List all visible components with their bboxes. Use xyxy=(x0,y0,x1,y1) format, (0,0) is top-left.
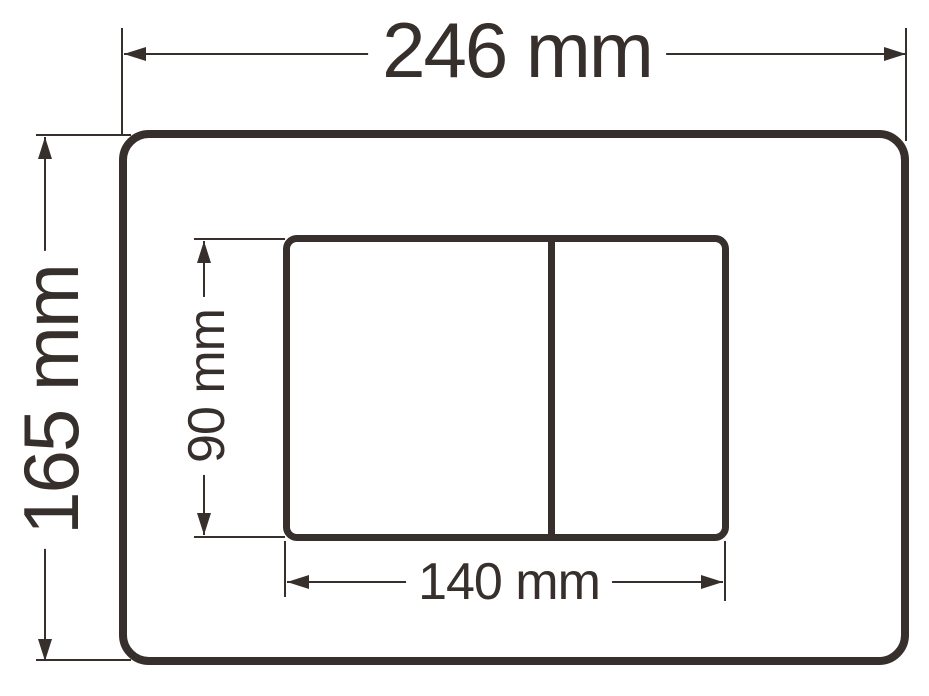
button-divider-line xyxy=(548,239,555,537)
outer-width-extension-line-left xyxy=(121,28,123,136)
outer-height-label: 165 mm xyxy=(12,251,90,549)
outer-width-arrow-left-icon xyxy=(124,47,146,61)
outer-height-arrow-up-icon xyxy=(38,137,52,159)
inner-width-extension-line-left xyxy=(284,541,286,597)
inner-width-arrow-left-icon xyxy=(287,575,309,589)
inner-height-arrow-down-icon xyxy=(197,513,211,535)
button-panel-outline xyxy=(283,235,729,541)
inner-width-arrow-right-icon xyxy=(701,575,723,589)
outer-height-arrow-down-icon xyxy=(38,639,52,661)
inner-width-label: 140 mm xyxy=(406,556,612,608)
inner-width-extension-line-right xyxy=(724,541,726,601)
outer-width-extension-line-right xyxy=(905,28,907,141)
inner-height-extension-line-bottom xyxy=(194,536,285,538)
inner-height-extension-line-top xyxy=(194,238,285,240)
inner-height-arrow-up-icon xyxy=(197,241,211,263)
dimension-drawing: { "diagram": { "background": "#ffffff", … xyxy=(0,0,929,696)
outer-width-label: 246 mm xyxy=(368,11,666,89)
outer-height-extension-line-top xyxy=(36,134,131,136)
outer-width-arrow-right-icon xyxy=(884,47,906,61)
inner-height-label: 90 mm xyxy=(181,297,233,475)
